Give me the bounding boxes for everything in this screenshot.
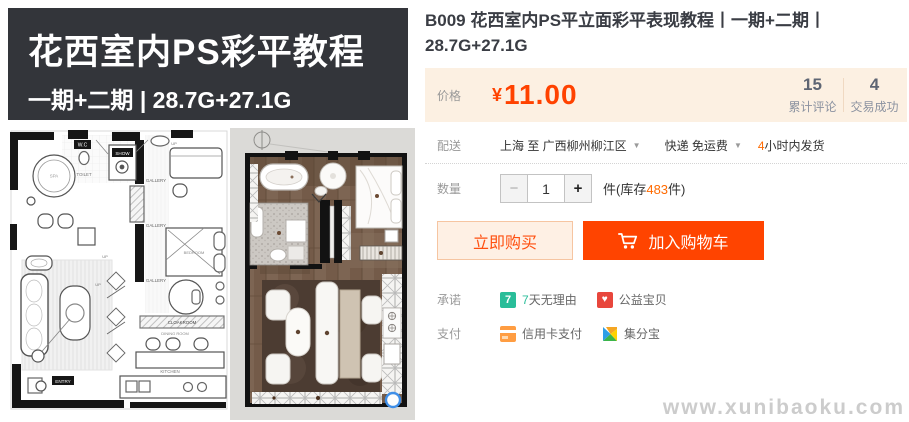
dining-room-label: DINING ROOM (161, 331, 189, 336)
banner-title: 花西室内PS彩平教程 (28, 24, 408, 75)
charity-heart-icon: ♥ (597, 292, 613, 308)
price-box: 价格 ¥ 11.00 15 累计评论 4 交易成功 (425, 68, 907, 122)
promise-row: 承诺 7 7天无理由 ♥ 公益宝贝 (437, 291, 907, 308)
payment-row: 支付 信用卡支付 集分宝 (437, 325, 907, 342)
banner-subtitle: 一期+二期 | 28.7G+27.1G (28, 81, 408, 115)
promise-label: 承诺 (437, 291, 500, 308)
up-label: UP (95, 282, 101, 287)
product-details: B009 花西室内PS平立面彩平表现教程丨一期+二期丨28.7G+27.1G 价… (425, 0, 907, 342)
cloakroom-label: CLOAKROOM (168, 320, 197, 325)
quantity-input[interactable] (528, 175, 564, 202)
stat-deals[interactable]: 4 交易成功 (844, 75, 905, 115)
buy-now-button[interactable]: 立即购买 (437, 221, 573, 260)
bedroom-label: BEDROOM (184, 250, 205, 255)
action-buttons: 立即购买 加入购物车 (437, 221, 907, 260)
gallery-label: GALLERY (146, 178, 166, 183)
quantity-decrease-button[interactable]: − (501, 175, 528, 202)
shipping-method-dropdown[interactable]: 快递 免运费 ▼ (665, 137, 742, 154)
add-to-cart-button[interactable]: 加入购物车 (583, 221, 764, 260)
seven-day-icon: 7 (500, 292, 516, 308)
price-label: 价格 (437, 87, 461, 104)
dispatch-promise: 4小时内发货 (758, 137, 825, 154)
wc-label: W.C (78, 143, 88, 149)
spa-label: SPA (50, 174, 59, 179)
floorplan-bw-image: W.C SHOW ENTRY SPA TOILET GALLERY GALLER… (8, 128, 230, 420)
seven-day-return-chip[interactable]: 7 7天无理由 (500, 291, 577, 308)
credit-card-icon (500, 326, 516, 342)
jifenbao-chip[interactable]: 集分宝 (602, 325, 660, 342)
price-currency: ¥ (492, 85, 502, 106)
shipping-row: 配送 上海 至 广西柳州柳江区 ▼ 快递 免运费 ▼ 4小时内发货 (437, 137, 907, 154)
divider (425, 163, 907, 164)
gallery-label: GALLERY (146, 223, 166, 228)
stock-note: 件(库存483件) (603, 179, 685, 198)
entry-label: ENTRY (55, 379, 71, 384)
floorplan-color-image (230, 128, 415, 420)
kitchen-label: KITCHEN (160, 369, 179, 374)
quantity-label: 数量 (437, 180, 500, 197)
stat-reviews[interactable]: 15 累计评论 (782, 75, 843, 115)
product-gallery: 花西室内PS彩平教程 一期+二期 | 28.7G+27.1G (8, 8, 415, 420)
site-watermark: www.xunibaoku.com (663, 396, 905, 420)
trade-stats: 15 累计评论 4 交易成功 (782, 68, 905, 122)
show-label: SHOW (115, 151, 130, 156)
living-area (262, 280, 382, 392)
wardrobe-strip (130, 186, 144, 222)
up-label: UP (102, 254, 108, 259)
chevron-down-icon: ▼ (633, 141, 641, 150)
product-title: B009 花西室内PS平立面彩平表现教程丨一期+二期丨28.7G+27.1G (425, 9, 899, 58)
bathtub (260, 164, 308, 190)
charity-baby-chip[interactable]: ♥ 公益宝贝 (597, 291, 667, 308)
scale-marker (386, 393, 400, 407)
credit-card-chip[interactable]: 信用卡支付 (500, 325, 582, 342)
payment-label: 支付 (437, 325, 500, 342)
gallery-label: GALLERY (146, 278, 166, 283)
course-banner: 花西室内PS彩平教程 一期+二期 | 28.7G+27.1G (8, 8, 408, 120)
quantity-row: 数量 − + 件(库存483件) (437, 174, 907, 203)
shipping-destination-dropdown[interactable]: 上海 至 广西柳州柳江区 ▼ (500, 137, 641, 154)
chevron-down-icon: ▼ (734, 141, 742, 150)
quantity-increase-button[interactable]: + (564, 175, 591, 202)
price-amount: 11.00 (504, 79, 578, 111)
bathroom (250, 203, 308, 265)
cart-icon (618, 232, 639, 250)
bed (356, 166, 402, 228)
jifenbao-icon (602, 326, 618, 342)
toilet-label: TOILET (76, 172, 92, 177)
quantity-stepper: − + (500, 174, 592, 203)
floorplan-images: W.C SHOW ENTRY SPA TOILET GALLERY GALLER… (8, 128, 415, 420)
shipping-label: 配送 (437, 137, 500, 154)
up-label: UP (171, 141, 177, 146)
